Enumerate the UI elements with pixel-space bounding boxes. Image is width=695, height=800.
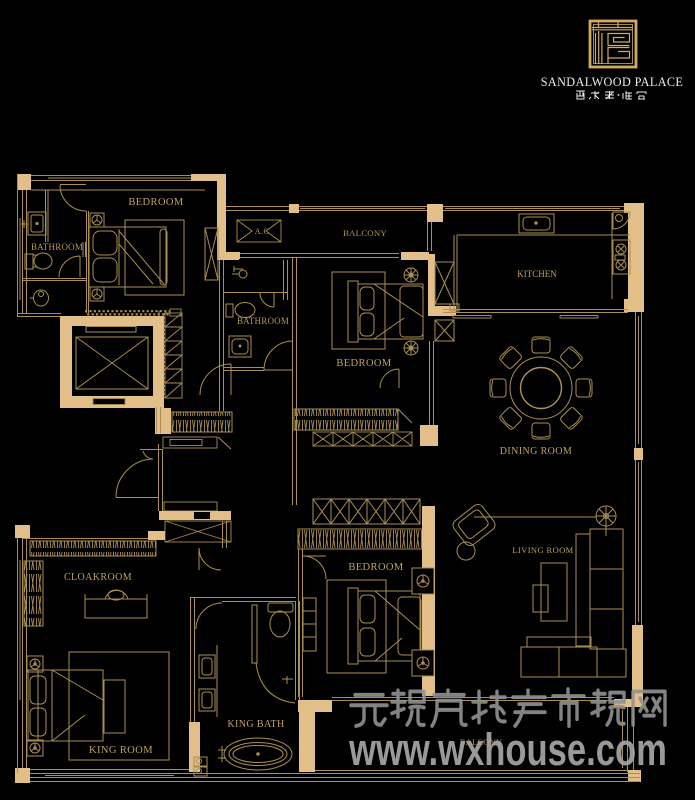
svg-text:BATHROOM: BATHROOM [31,242,83,252]
svg-text:KING ROOM: KING ROOM [89,745,153,756]
svg-text:BEDROOM: BEDROOM [336,358,392,369]
svg-text:LIVING ROOM: LIVING ROOM [512,545,573,555]
svg-text:BEDROOM: BEDROOM [128,197,184,208]
svg-text:www.wxhouse.com: www.wxhouse.com [348,723,667,775]
svg-text:A.C: A.C [255,227,270,236]
svg-text:BALCONY: BALCONY [343,228,387,238]
svg-text:CLOAKROOM: CLOAKROOM [64,572,132,583]
svg-text:KING BATH: KING BATH [227,719,284,730]
svg-text:KITCHEN: KITCHEN [517,269,557,279]
svg-text:SANDALWOOD PALACE: SANDALWOOD PALACE [541,75,684,89]
svg-text:BATHROOM: BATHROOM [237,316,289,326]
svg-text:DINING ROOM: DINING ROOM [500,446,572,457]
svg-text:BEDROOM: BEDROOM [348,562,404,573]
